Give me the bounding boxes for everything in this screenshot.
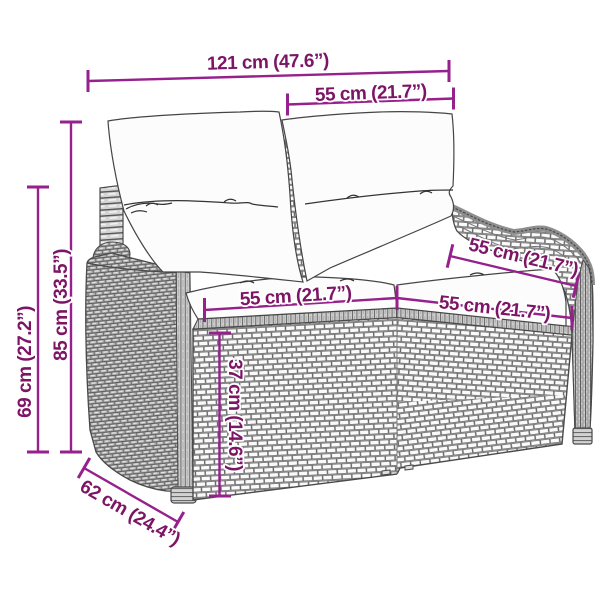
svg-text:69 cm (27.2”): 69 cm (27.2”) (15, 306, 36, 418)
svg-text:85 cm (33.5”): 85 cm (33.5”) (51, 249, 72, 361)
svg-text:55 cm (21.7”): 55 cm (21.7”) (315, 81, 428, 106)
svg-text:121 cm (47.6”): 121 cm (47.6”) (207, 50, 330, 74)
svg-text:37 cm (14.6”): 37 cm (14.6”) (224, 359, 245, 471)
